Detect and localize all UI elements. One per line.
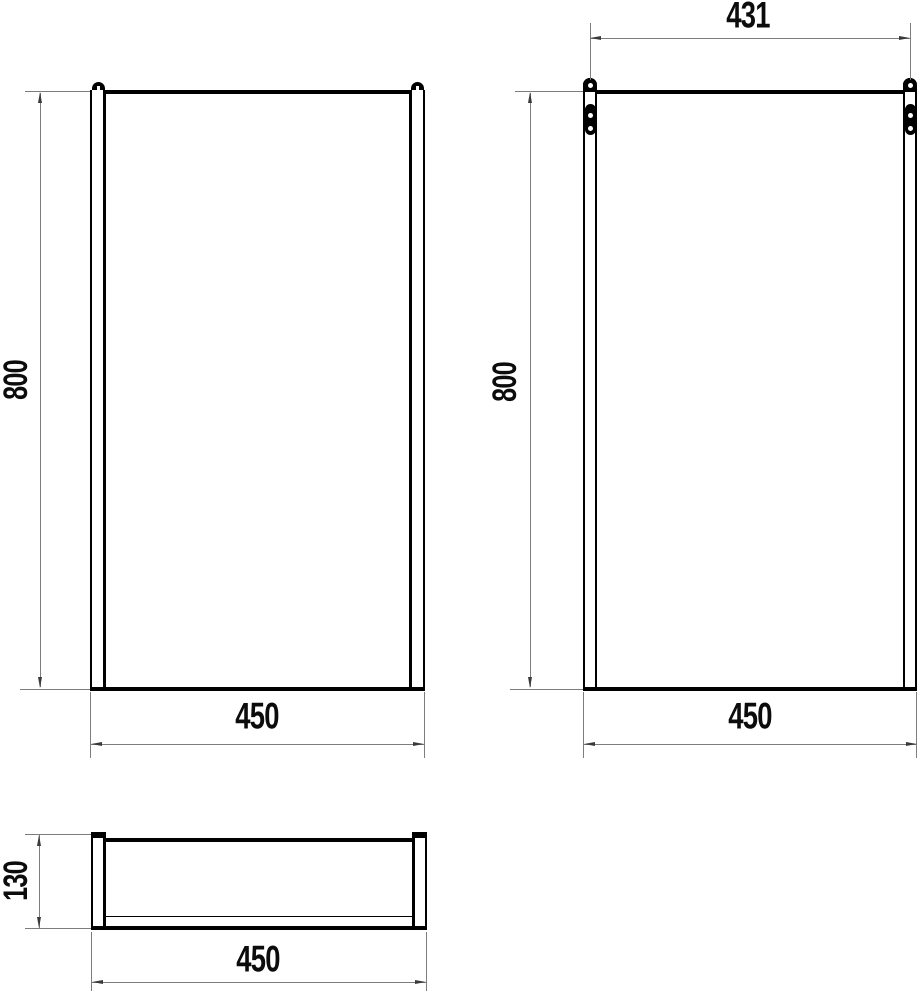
dim-label-top-width: 450 <box>236 941 279 978</box>
arrow-down-icon <box>37 917 41 928</box>
extension-line <box>25 834 91 835</box>
arrow-left-icon <box>92 980 103 984</box>
right-end-cap <box>413 832 426 838</box>
dimension-line <box>39 835 40 928</box>
right-end-bar <box>412 832 427 930</box>
extension-line <box>426 932 427 991</box>
left-end-cap <box>92 832 105 838</box>
dimension-line <box>92 982 426 983</box>
extension-line <box>25 928 91 929</box>
shelf-line <box>106 916 412 918</box>
top-view: 130 450 <box>0 0 921 1000</box>
technical-drawing: 800 450 431 <box>0 0 921 1000</box>
left-end-bar <box>91 832 106 930</box>
arrow-right-icon <box>415 980 426 984</box>
front-rail <box>106 838 412 842</box>
bottom-rail <box>91 926 427 930</box>
arrow-up-icon <box>37 835 41 846</box>
dim-label-top-depth: 130 <box>0 861 33 901</box>
